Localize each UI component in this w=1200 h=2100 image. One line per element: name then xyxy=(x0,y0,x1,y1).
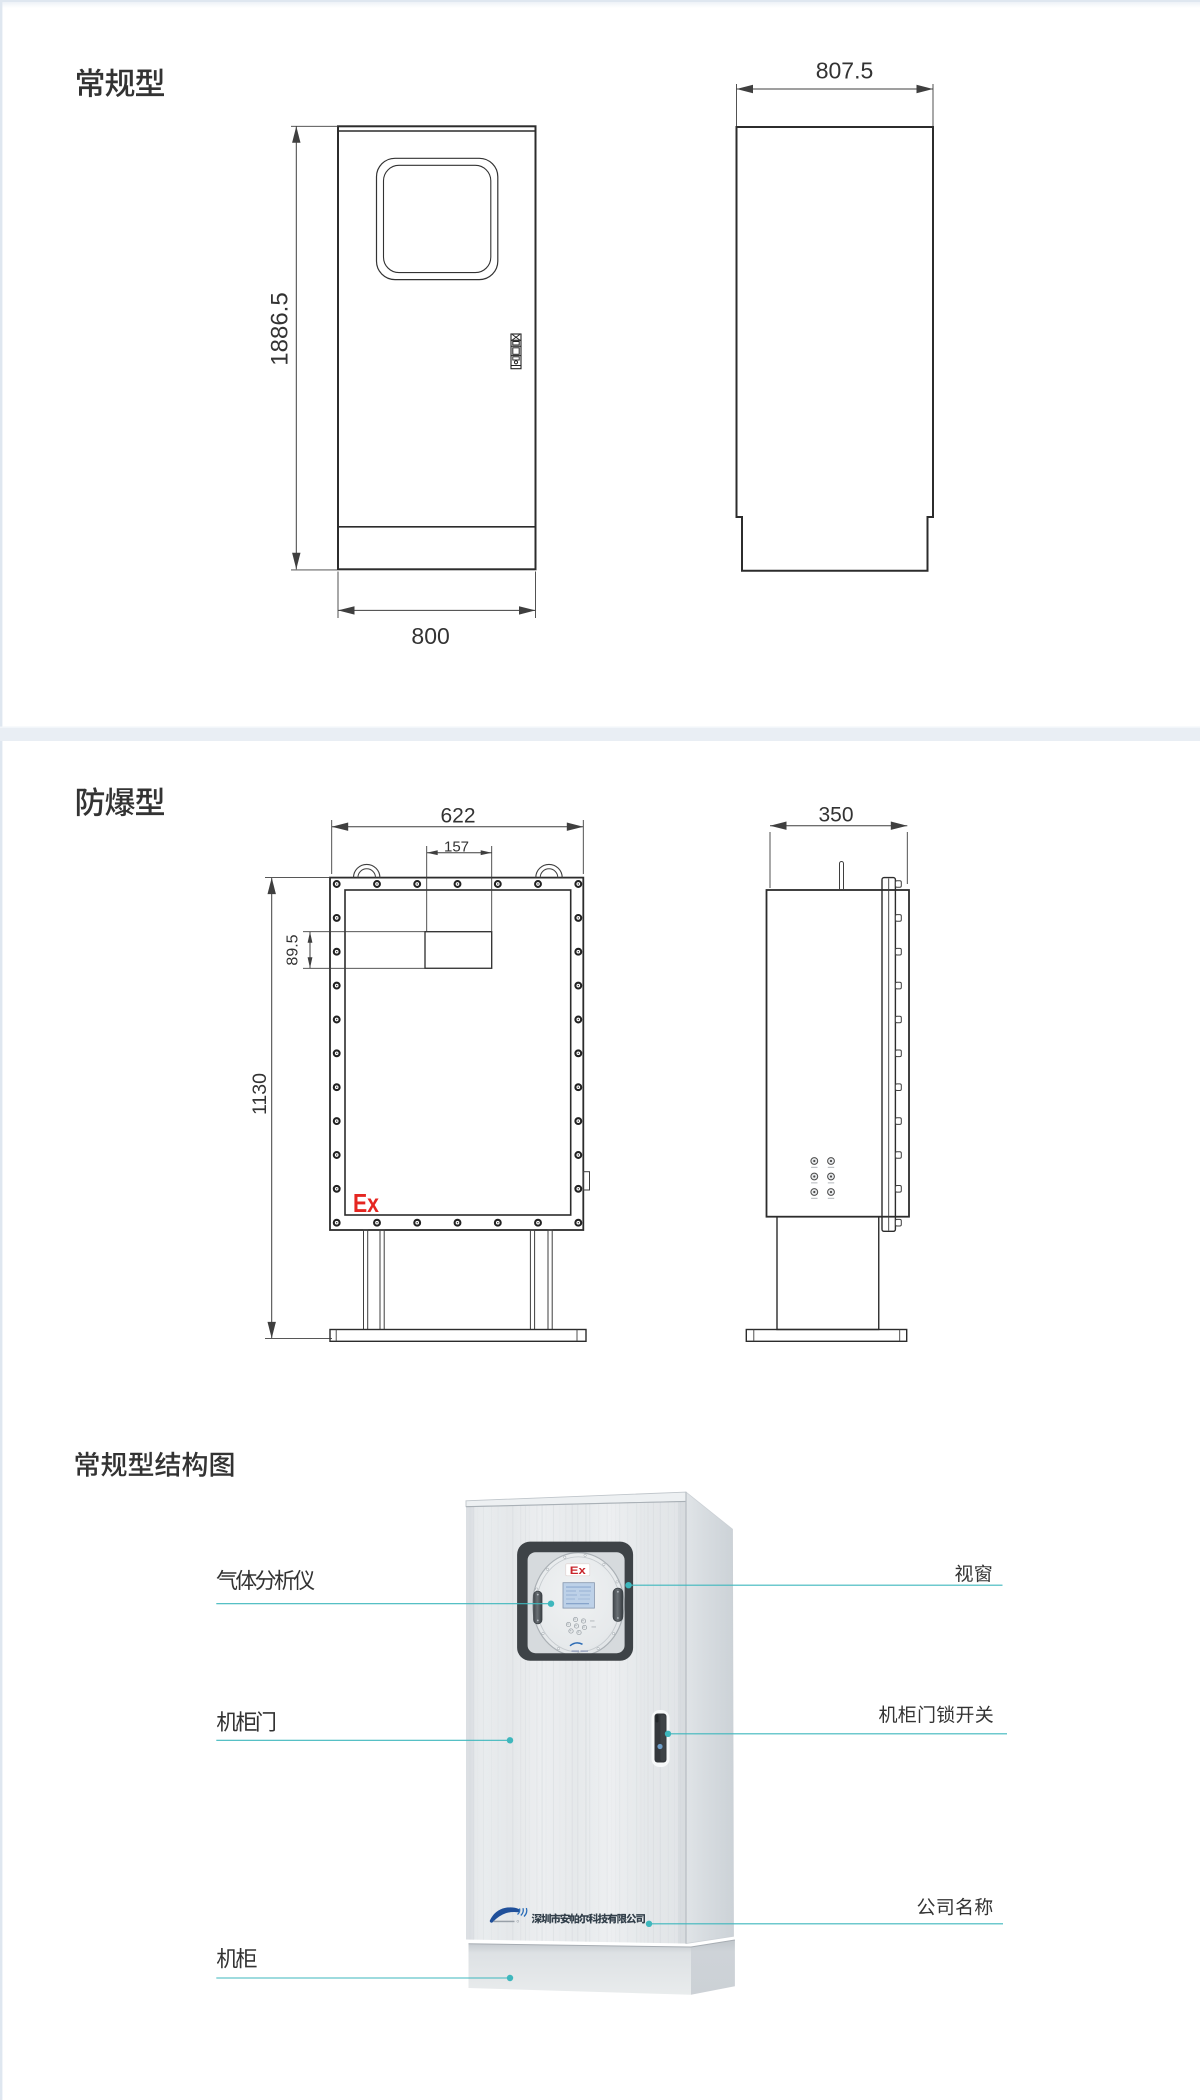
svg-text:157: 157 xyxy=(444,839,469,856)
svg-text:Ex: Ex xyxy=(570,1565,587,1577)
svg-text:807.5: 807.5 xyxy=(816,58,874,84)
svg-text:350: 350 xyxy=(818,804,853,827)
svg-text:622: 622 xyxy=(440,805,475,828)
svg-text:1886.5: 1886.5 xyxy=(267,292,294,365)
svg-text:Ex: Ex xyxy=(353,1188,379,1218)
svg-text:1130: 1130 xyxy=(249,1073,271,1115)
svg-text:800: 800 xyxy=(411,623,449,649)
svg-text:89.5: 89.5 xyxy=(284,934,301,965)
